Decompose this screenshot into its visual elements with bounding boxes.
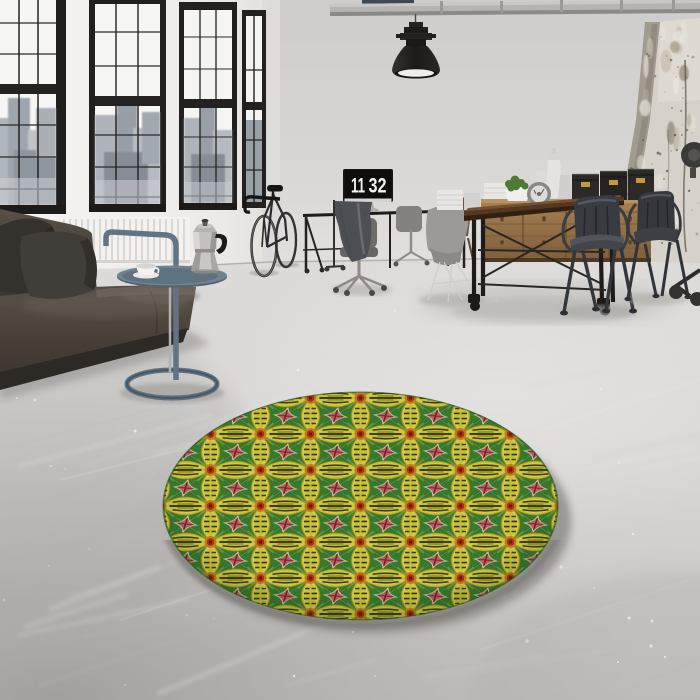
svg-text:11: 11 (351, 175, 365, 198)
svg-text:32: 32 (369, 175, 387, 198)
